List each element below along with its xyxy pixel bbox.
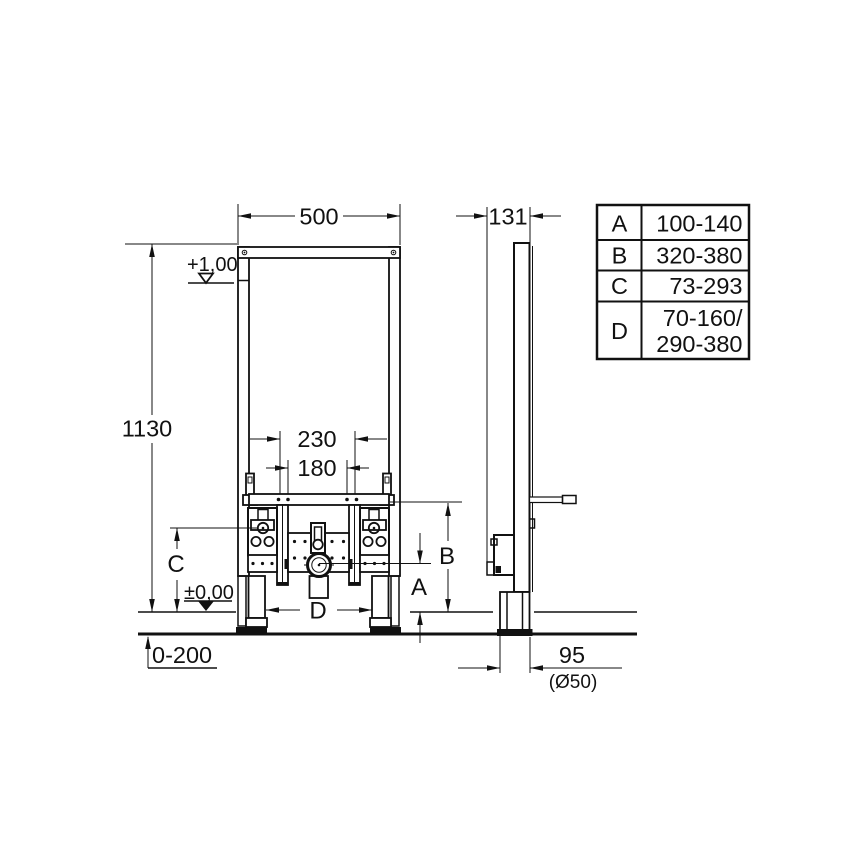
side-bracket <box>487 535 514 575</box>
dim-label-500: 500 <box>299 204 338 230</box>
dim-width-500: 500 <box>238 204 400 246</box>
dim-label-131: 131 <box>488 204 527 230</box>
leg-left <box>236 576 267 634</box>
installation-frame-drawing: 500 1130 230 180 +1,00 ±0,00 <box>0 0 868 868</box>
table-row-c-value: 73-293 <box>669 273 742 299</box>
table-row-b-label: B <box>612 243 628 269</box>
anchor-bracket-right <box>360 508 389 572</box>
dim-label-230: 230 <box>297 426 336 452</box>
level-triangle-open-icon <box>199 274 213 284</box>
right-rail <box>389 247 400 576</box>
table-row-c-label: C <box>611 273 628 299</box>
anchor-bracket-left <box>248 508 277 572</box>
table-row-d-value-line2: 290-380 <box>656 331 742 357</box>
mounting-stud <box>530 496 577 504</box>
level-marker-plus-1: +1,00 <box>187 254 238 283</box>
mounting-crossbar <box>249 494 389 505</box>
dim-label-diameter-50: (Ø50) <box>549 672 598 693</box>
level-marker-zero: ±0,00 <box>184 582 234 611</box>
dim-drain-offset-95: 95 (Ø50) <box>458 614 622 693</box>
dim-a: A <box>411 533 431 643</box>
dim-label-a: A <box>411 574 427 601</box>
side-foot <box>497 592 533 636</box>
dim-d: D <box>266 598 372 625</box>
dim-label-b: B <box>439 543 455 570</box>
dim-label-180: 180 <box>297 455 336 481</box>
table-row-d-label: D <box>611 318 628 344</box>
top-bar <box>238 247 400 258</box>
side-channel <box>514 243 530 592</box>
technical-drawing-page: 500 1130 230 180 +1,00 ±0,00 <box>0 0 868 868</box>
slotted-rail-right <box>349 505 360 586</box>
bolt-hole <box>277 498 281 502</box>
table-row-d-value-line1: 70-160/ <box>663 305 743 331</box>
bolt-hole <box>286 498 290 502</box>
dim-label-c: C <box>167 551 184 578</box>
table-row-a-label: A <box>612 211 628 237</box>
dim-label-0-200: 0-200 <box>152 642 212 668</box>
dim-depth-131: 131 <box>456 204 561 563</box>
table-row-a-value: 100-140 <box>656 211 742 237</box>
slot-fixture <box>311 523 325 553</box>
table-row-b-value: 320-380 <box>656 243 742 269</box>
dim-label-95: 95 <box>559 642 585 668</box>
bolt-hole <box>345 498 349 502</box>
dim-floor-buildup: 0-200 <box>145 636 217 668</box>
dim-spacing-180: 180 <box>266 455 369 494</box>
dim-label-d: D <box>309 598 326 625</box>
leg-right <box>370 576 401 634</box>
dim-label-1130: 1130 <box>122 416 173 442</box>
spec-table: A 100-140 B 320-380 C 73-293 D 70-160/ 2… <box>597 205 749 359</box>
level-triangle-filled-icon <box>198 601 214 611</box>
slotted-rail-left <box>277 505 288 586</box>
drain-pipe <box>310 576 329 598</box>
bolt-hole <box>355 498 359 502</box>
side-view <box>487 243 576 636</box>
